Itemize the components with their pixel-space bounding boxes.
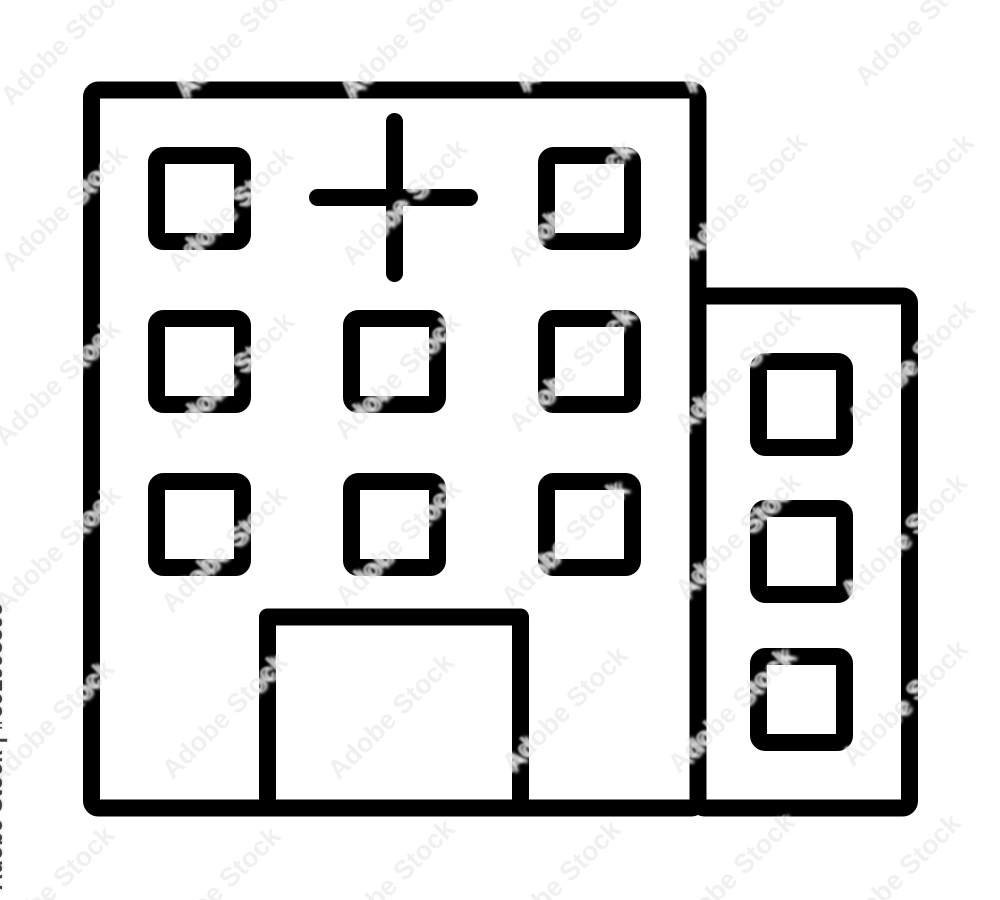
stock-image-preview: Adobe StockAdobe StockAdobe StockAdobe S… bbox=[0, 0, 1000, 900]
annex-building-outline bbox=[698, 296, 910, 808]
window-row3-left bbox=[157, 482, 243, 568]
annex-window-bottom bbox=[759, 657, 845, 743]
entrance-door-outline bbox=[268, 617, 521, 808]
window-row3-middle bbox=[352, 482, 438, 568]
annex-window-middle bbox=[759, 509, 845, 595]
medical-cross-icon bbox=[318, 122, 470, 274]
hospital-building-icon bbox=[0, 0, 1000, 900]
window-row2-left bbox=[157, 319, 243, 405]
window-row1-left bbox=[157, 156, 243, 242]
annex-window-top bbox=[759, 362, 845, 448]
window-row2-middle bbox=[352, 319, 438, 405]
window-row1-right bbox=[547, 156, 633, 242]
window-row3-right bbox=[547, 482, 633, 568]
window-row2-right bbox=[547, 319, 633, 405]
